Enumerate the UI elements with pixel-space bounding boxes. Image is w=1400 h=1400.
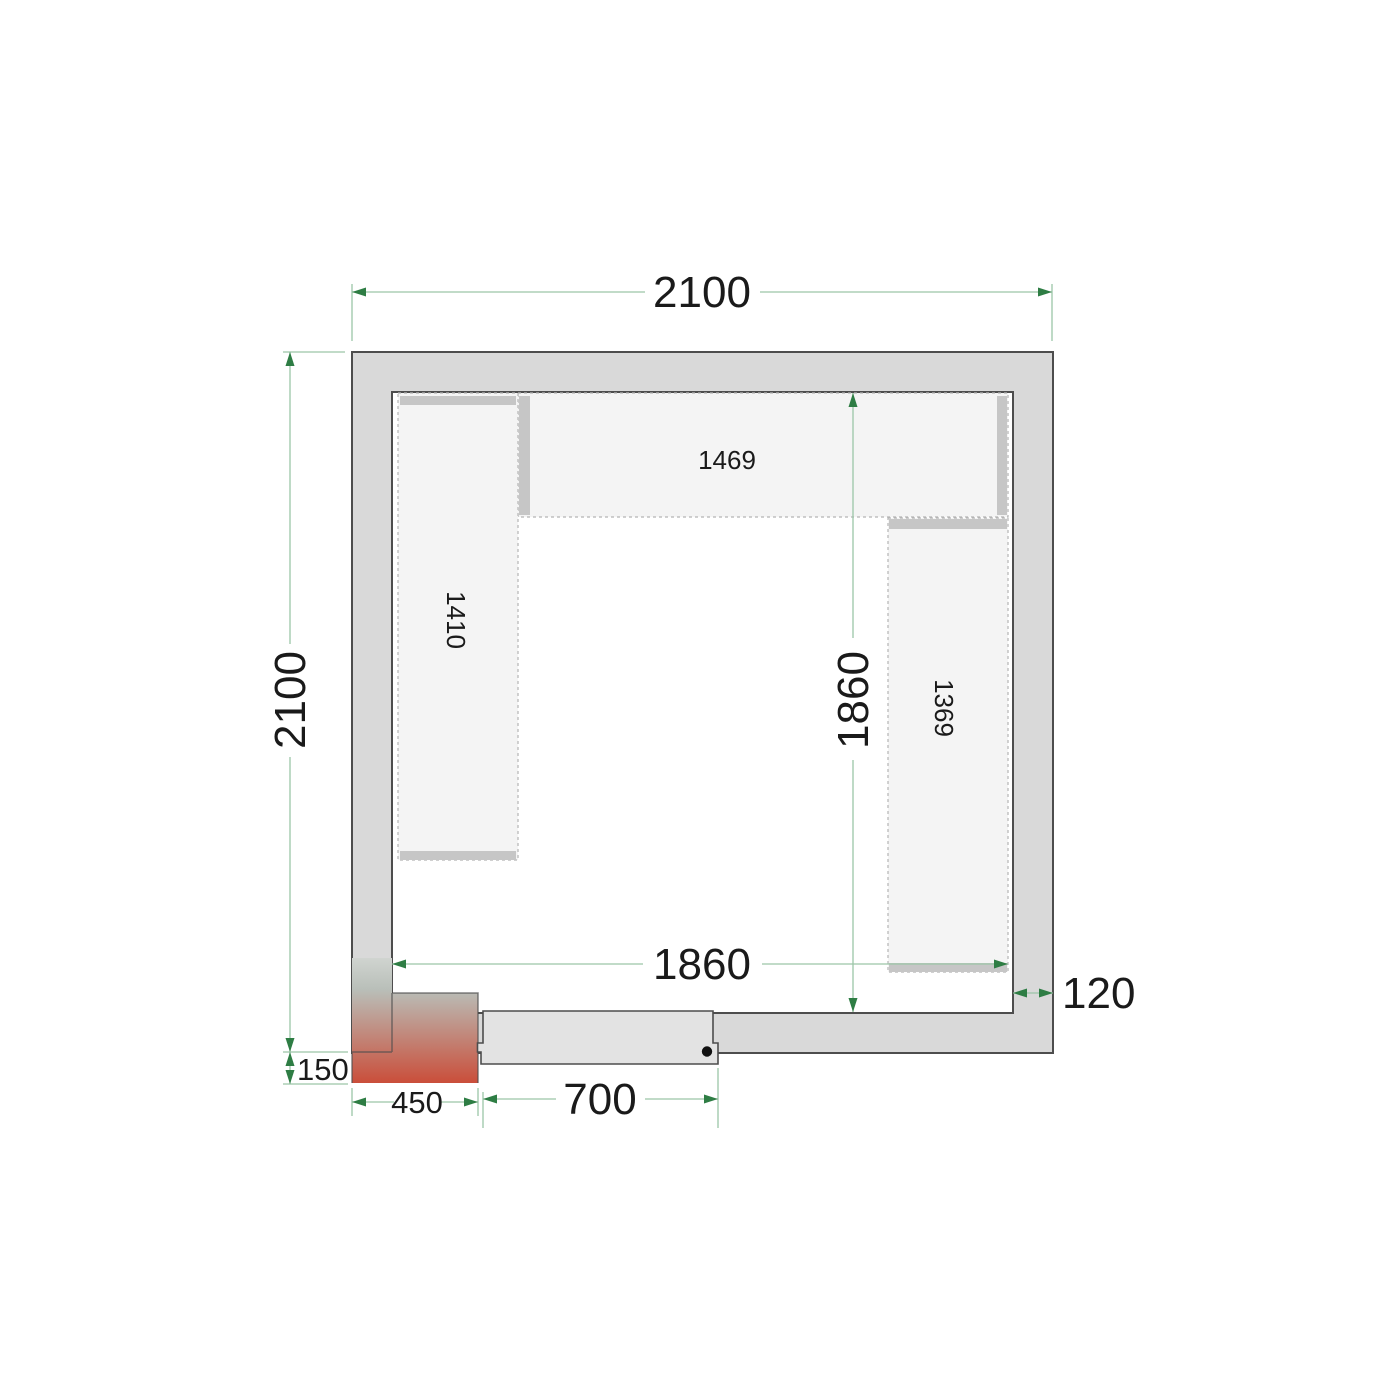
arrow-left-icon <box>352 1098 366 1107</box>
door <box>478 1011 719 1064</box>
shelf-left-bottom-support <box>400 851 516 860</box>
shelf-right-top-support <box>889 519 1007 529</box>
dimension-unit-width: 450 <box>352 1085 478 1120</box>
dimension-door-width: 700 <box>483 1068 718 1128</box>
shelf-top-left-support <box>519 396 530 515</box>
dimension-door-width-label: 700 <box>563 1075 636 1124</box>
shelf-top: 1469 <box>518 393 1008 517</box>
shelf-left-top-support <box>400 396 516 405</box>
shelf-right-label: 1369 <box>929 679 959 737</box>
condensing-unit-block <box>352 958 478 1083</box>
dimension-inner-width-label: 1860 <box>653 940 751 989</box>
arrow-down-icon <box>849 998 858 1012</box>
shelf-left: 1410 <box>398 393 518 860</box>
dimension-inner-height-label: 1860 <box>829 651 878 749</box>
shelf-left-label: 1410 <box>441 591 471 649</box>
dimension-outer-height-label: 2100 <box>266 651 315 749</box>
arrow-left-icon <box>483 1095 497 1104</box>
door-handle-dot <box>702 1046 712 1056</box>
arrow-right-icon <box>464 1098 478 1107</box>
dimension-unit-offset: 150 <box>283 1052 349 1087</box>
cold-room-plan-canvas: 1469 1410 1369 2100 2100 <box>0 0 1400 1400</box>
arrow-down-icon <box>286 1070 295 1084</box>
arrow-left-icon <box>352 288 366 297</box>
floor-plan-svg: 1469 1410 1369 2100 2100 <box>0 0 1400 1400</box>
arrow-up-icon <box>286 1052 295 1066</box>
dimension-wall-thickness-label: 120 <box>1062 969 1135 1018</box>
arrow-right-icon <box>1038 288 1052 297</box>
shelf-top-right-support <box>997 396 1007 515</box>
dimension-unit-offset-label: 150 <box>297 1052 349 1087</box>
arrow-right-icon <box>704 1095 718 1104</box>
dimension-outer-width: 2100 <box>352 268 1052 341</box>
arrow-left-icon <box>392 960 406 969</box>
arrow-up-icon <box>286 352 295 366</box>
dimension-outer-width-label: 2100 <box>653 268 751 317</box>
shelf-right: 1369 <box>888 518 1008 972</box>
shelf-top-label: 1469 <box>698 445 756 475</box>
arrow-down-icon <box>286 1038 295 1052</box>
dimension-unit-width-label: 450 <box>391 1085 443 1120</box>
dimension-outer-height: 2100 <box>266 352 345 1052</box>
